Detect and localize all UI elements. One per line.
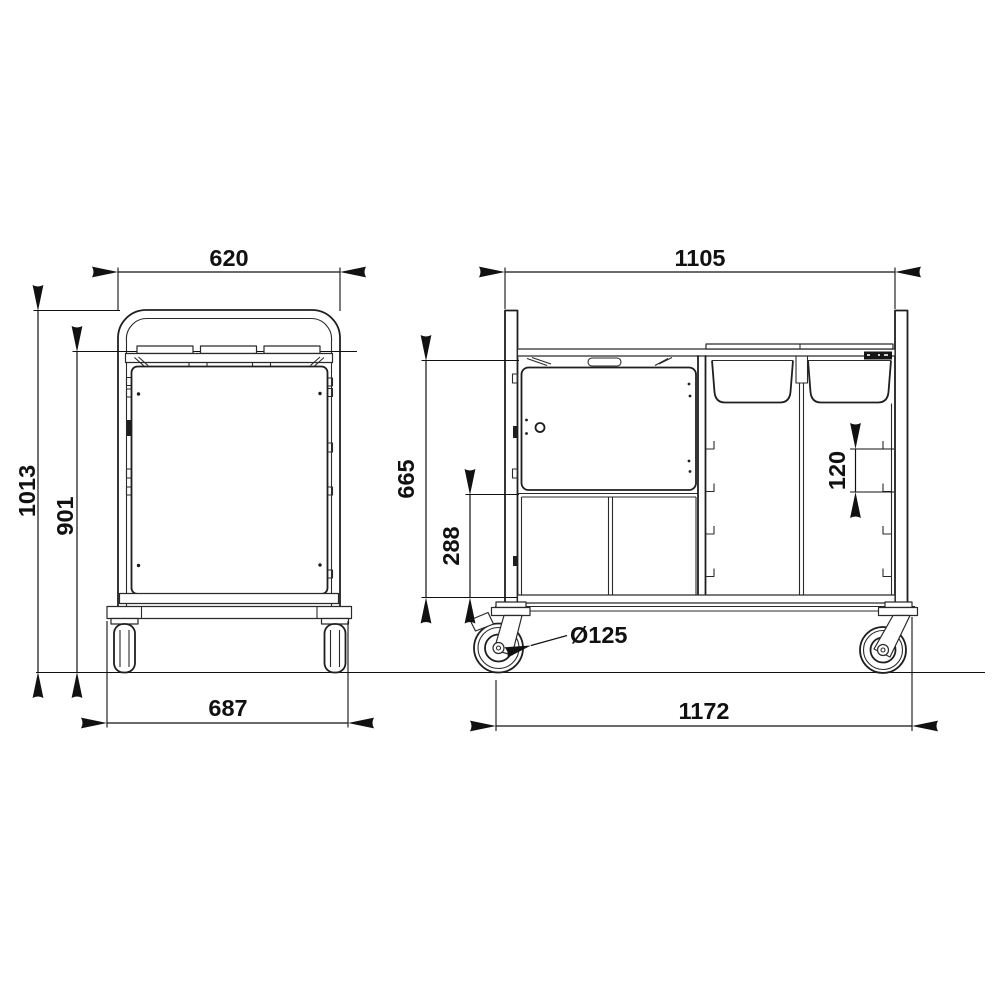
caster-front-right (322, 619, 349, 673)
caster-hub (493, 643, 504, 654)
caster-side-left (470, 602, 530, 673)
dim-label-120: 120 (824, 451, 850, 490)
bin-left (712, 361, 793, 403)
caster-hub (878, 645, 889, 656)
base-side (495, 595, 915, 611)
dimension-caster-diameter: Ø125 (531, 622, 628, 648)
dimension-front-top-width: 620 (118, 245, 340, 311)
dimension-side-top-width: 1105 (505, 245, 895, 309)
dim-label-1105: 1105 (675, 245, 726, 271)
technical-drawing: 620 1013 901 687 1105 665 288 (0, 0, 1000, 1000)
dim-label-687: 687 (208, 695, 247, 721)
tray-slots (527, 358, 672, 367)
panel-screw (318, 392, 321, 395)
upright-right (895, 311, 908, 608)
cabinet-door (522, 368, 697, 491)
dim-label-665: 665 (393, 459, 419, 498)
waste-bins (712, 361, 891, 403)
dimension-front-overall-height: 1013 (14, 311, 120, 673)
dimension-side-base-width: 1172 (496, 617, 912, 731)
base-front (107, 594, 352, 619)
panel-screw (318, 563, 321, 566)
dim-label-901: 901 (52, 496, 78, 535)
panel-screw (137, 392, 140, 395)
dimension-front-inner-height: 901 (52, 352, 78, 672)
drawing-canvas: 620 1013 901 687 1105 665 288 (0, 0, 1000, 1000)
front-view (73, 310, 358, 673)
bin-right (808, 361, 891, 403)
brake-lever (470, 613, 494, 632)
dim-label-1172: 1172 (679, 698, 730, 724)
lower-compartment (518, 494, 699, 596)
caster-front-left (111, 619, 138, 673)
panel-screw (137, 564, 140, 567)
back-panel (132, 367, 328, 595)
dim-label-288: 288 (438, 526, 464, 565)
drawer-slides (706, 441, 892, 577)
dim-label-1013: 1013 (14, 465, 40, 517)
caster-side-right (860, 602, 918, 673)
dim-label-caster: Ø125 (570, 622, 628, 648)
dim-label-620: 620 (209, 245, 248, 271)
dimension-front-base-width: 687 (107, 621, 348, 728)
